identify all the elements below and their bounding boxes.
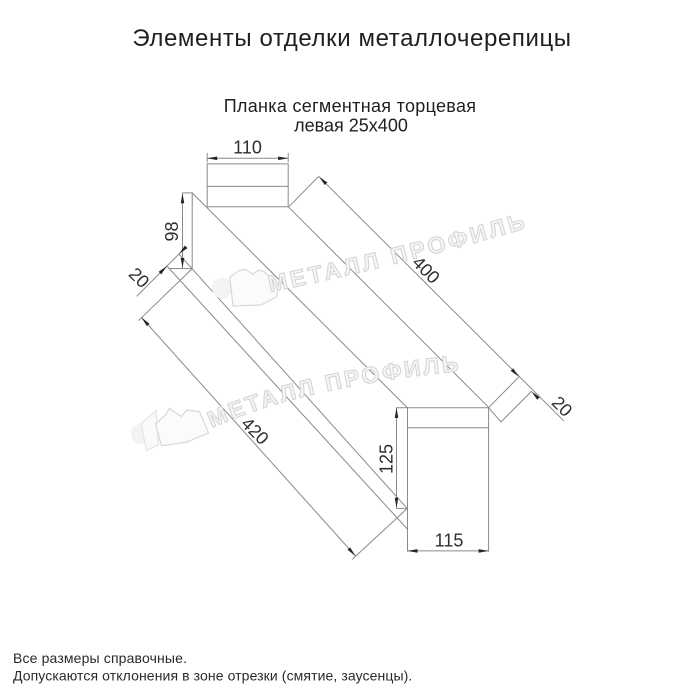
svg-text:110: 110	[233, 138, 262, 158]
svg-text:115: 115	[435, 531, 464, 551]
svg-text:20: 20	[125, 264, 153, 292]
svg-text:Допускаются отклонения в зоне: Допускаются отклонения в зоне отрезки (с…	[13, 668, 412, 684]
svg-text:левая 25х400: левая 25х400	[294, 116, 408, 136]
svg-text:МЕТАЛЛ ПРОФИЛЬ: МЕТАЛЛ ПРОФИЛЬ	[266, 207, 531, 297]
svg-text:125: 125	[377, 444, 397, 474]
svg-text:Планка сегментная торцевая: Планка сегментная торцевая	[224, 96, 477, 116]
svg-text:Все размеры справочные.: Все размеры справочные.	[13, 650, 187, 666]
svg-text:Элементы отделки металлочерепи: Элементы отделки металлочерепицы	[132, 25, 571, 52]
svg-text:98: 98	[162, 221, 182, 241]
svg-text:20: 20	[548, 392, 576, 420]
svg-text:МЕТАЛЛ ПРОФИЛЬ: МЕТАЛЛ ПРОФИЛЬ	[203, 350, 462, 433]
